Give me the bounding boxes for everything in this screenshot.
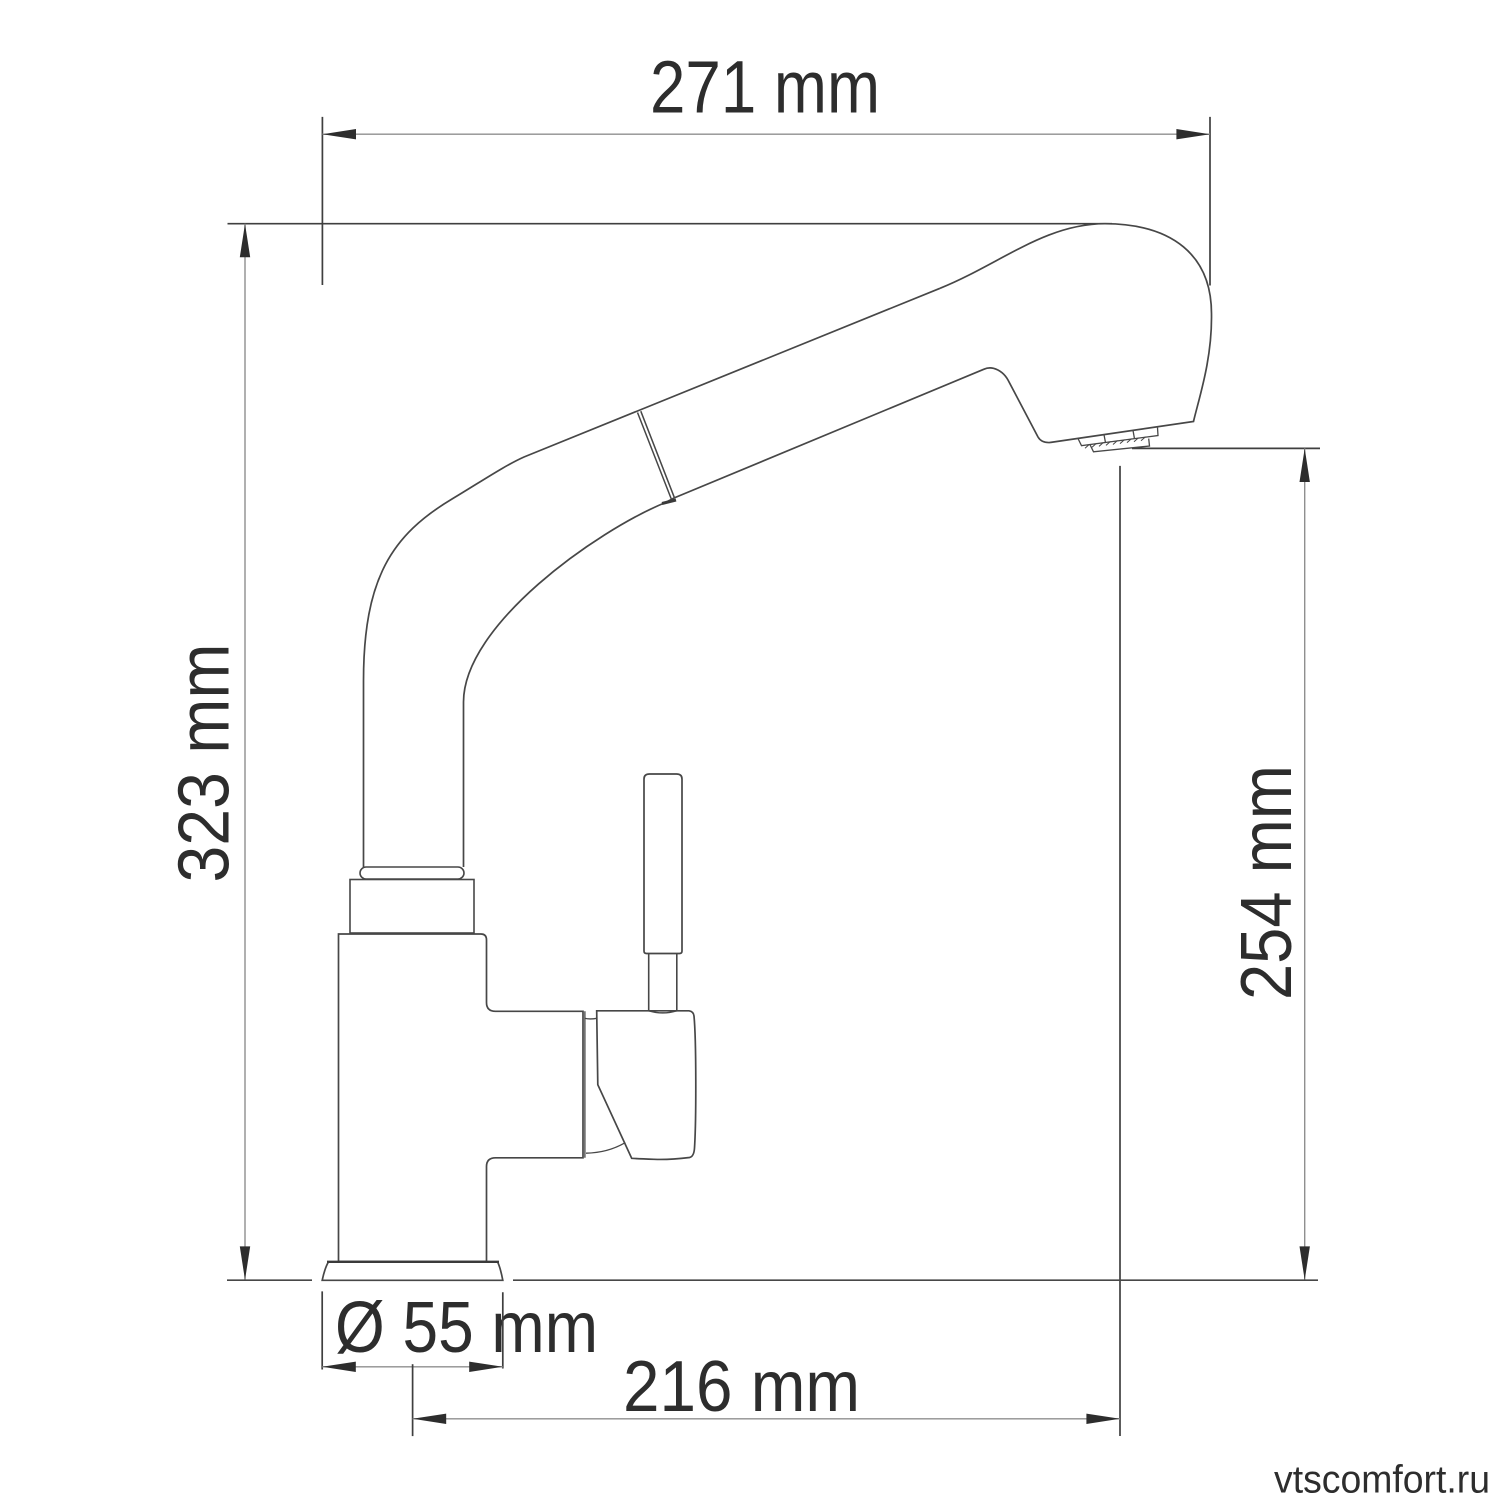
svg-text:216 mm: 216 mm (623, 1347, 860, 1427)
svg-text:vtscomfort.ru: vtscomfort.ru (1274, 1459, 1490, 1500)
svg-text:254 mm: 254 mm (1227, 765, 1307, 1000)
svg-text:271 mm: 271 mm (650, 46, 880, 129)
svg-text:Ø 55 mm: Ø 55 mm (335, 1288, 598, 1368)
svg-text:323 mm: 323 mm (165, 644, 245, 883)
